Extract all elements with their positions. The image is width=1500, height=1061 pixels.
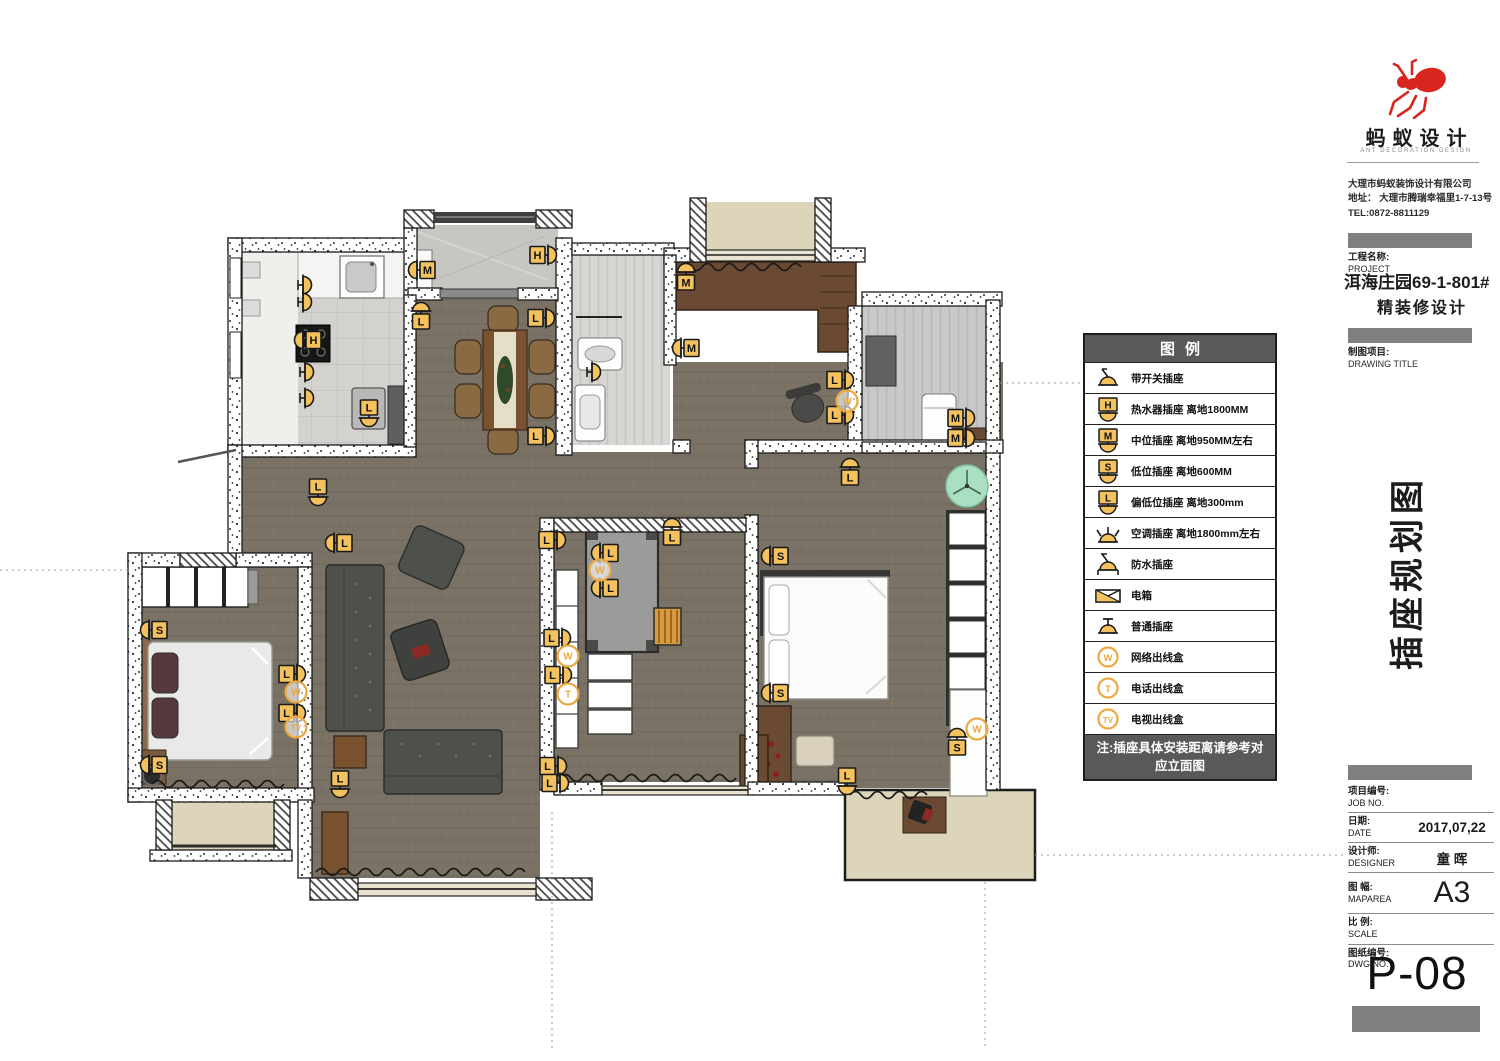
- socket-marker: S: [141, 620, 168, 641]
- socket-marker: L: [840, 459, 861, 486]
- legend-row: W网络出线盒: [1085, 641, 1275, 672]
- svg-text:L: L: [283, 669, 290, 681]
- brand-subtitle: ANT DECORATION DESIGN: [1346, 148, 1486, 154]
- outlet-marker-W: W: [286, 682, 307, 703]
- section-bar: [1348, 328, 1472, 343]
- socket-marker: L: [359, 400, 380, 427]
- socket-marker: L: [662, 519, 683, 546]
- outlet-marker-TV: TV: [286, 717, 307, 738]
- svg-text:L: L: [543, 535, 550, 547]
- waterproof-socket-icon: [1085, 551, 1131, 578]
- ac-socket-icon: [1085, 520, 1131, 547]
- svg-text:T: T: [565, 690, 571, 701]
- svg-text:L: L: [548, 633, 555, 645]
- socket-marker: M: [948, 408, 975, 429]
- outlet-marker-W: W: [558, 646, 579, 667]
- ceiling-fan-icon: [946, 465, 988, 507]
- svg-text:L: L: [831, 410, 838, 422]
- circle-outlet-icon: W: [1085, 644, 1131, 671]
- socket-marker: S: [141, 755, 168, 776]
- titleblock-value: 童 晖: [1410, 848, 1494, 868]
- svg-text:TV: TV: [1103, 716, 1114, 725]
- socket-marker: L: [542, 773, 569, 794]
- legend-label: 网络出线盒: [1131, 650, 1184, 665]
- svg-text:L: L: [532, 431, 539, 443]
- legend-label: 电话出线盒: [1131, 681, 1184, 696]
- sheet-title-vertical: 插座规划图: [1346, 452, 1462, 692]
- svg-text:H: H: [534, 250, 542, 262]
- letter-socket-icon: S: [1085, 458, 1131, 485]
- socket-marker: S: [762, 546, 789, 567]
- svg-text:L: L: [341, 538, 348, 550]
- legend-row: T电话出线盒: [1085, 672, 1275, 703]
- svg-text:W: W: [563, 652, 573, 663]
- svg-text:S: S: [156, 625, 163, 637]
- ladder: [654, 608, 681, 645]
- letter-socket-icon: H: [1085, 396, 1131, 423]
- laundry-cabinet: [866, 336, 896, 386]
- svg-text:L: L: [418, 317, 425, 329]
- titleblock-value: 2017,07,22: [1410, 820, 1494, 835]
- svg-text:M: M: [951, 433, 960, 445]
- socket-marker: L: [539, 530, 566, 551]
- svg-text:L: L: [607, 583, 614, 595]
- svg-text:S: S: [777, 688, 784, 700]
- company-tel: TEL:0872-8811129: [1348, 207, 1500, 221]
- legend-row: H热水器插座 离地1800MM: [1085, 393, 1275, 424]
- socket-marker: L: [411, 303, 432, 330]
- titleblock-row: 日期:DATE2017,07,22: [1348, 813, 1494, 843]
- svg-text:L: L: [669, 533, 676, 545]
- legend-label: 带开关插座: [1131, 371, 1184, 386]
- brand-divider: [1347, 162, 1479, 163]
- project-name: 洱海庄园69-1-801#: [1344, 268, 1500, 293]
- legend-label: 防水插座: [1131, 557, 1173, 572]
- svg-text:L: L: [544, 761, 551, 773]
- svg-text:M: M: [1104, 431, 1112, 442]
- legend-row: M中位插座 离地950MM左右: [1085, 424, 1275, 455]
- socket-marker: L: [528, 308, 555, 329]
- socket-marker: M: [673, 338, 700, 359]
- svg-text:S: S: [777, 551, 784, 563]
- drawing-sheet: HLMHLLLLMMLLMMLSSLSLLLLLLLLLSSLLLWWWWTWT…: [0, 0, 1500, 1061]
- socket-marker: L: [540, 756, 567, 777]
- titleblock-row: 项目编号:JOB NO.: [1348, 783, 1494, 813]
- legend-label: 普通插座: [1131, 619, 1173, 634]
- svg-text:L: L: [366, 403, 373, 415]
- svg-text:W: W: [291, 688, 301, 699]
- circle-outlet-icon: T: [1085, 675, 1131, 702]
- svg-text:TV: TV: [291, 724, 302, 733]
- normal-socket-icon: [1085, 613, 1131, 640]
- switch-socket-icon: [1085, 365, 1131, 392]
- svg-text:W: W: [842, 397, 852, 408]
- circle-outlet-icon: TV: [1085, 706, 1131, 733]
- kitchen-sink: [340, 256, 384, 298]
- legend-panel: 图例 带开关插座H热水器插座 离地1800MMM中位插座 离地950MM左右S低…: [1083, 333, 1277, 781]
- company-address: 地址： 大理市腾瑞幸福里1-7-13号: [1348, 192, 1500, 206]
- svg-text:H: H: [1104, 400, 1111, 411]
- titleblock-row: 图 幅:MAPAREAA3: [1348, 873, 1494, 914]
- legend-note: 注:插座具体安装距离请参考对应立面图: [1085, 734, 1275, 779]
- svg-text:L: L: [549, 670, 556, 682]
- section-bar: [1352, 1006, 1480, 1032]
- legend-row: 带开关插座: [1085, 362, 1275, 393]
- svg-text:L: L: [1105, 493, 1111, 504]
- svg-text:L: L: [532, 313, 539, 325]
- titleblock-row: 比 例:SCALE: [1348, 914, 1494, 944]
- legend-label: 偏低位插座 离地300mm: [1131, 495, 1244, 510]
- svg-text:W: W: [595, 566, 605, 577]
- sheet-number: P-08: [1352, 946, 1482, 1000]
- svg-text:S: S: [1105, 462, 1112, 473]
- legend-row: TV电视出线盒: [1085, 703, 1275, 734]
- legend-label: 电视出线盒: [1131, 712, 1184, 727]
- legend-row: 普通插座: [1085, 610, 1275, 641]
- outlet-marker-W: W: [837, 391, 858, 412]
- socket-marker: S: [947, 729, 968, 756]
- section-bar: [1348, 765, 1472, 780]
- bed-bench: [796, 736, 834, 766]
- shoe-cabinet: [322, 812, 348, 874]
- master-bed: [760, 570, 890, 699]
- svg-text:S: S: [156, 760, 163, 772]
- svg-text:L: L: [546, 778, 553, 790]
- project-name-line2: 精装修设计: [1344, 294, 1500, 318]
- svg-text:L: L: [831, 375, 838, 387]
- legend-label: 中位插座 离地950MM左右: [1131, 433, 1253, 448]
- legend-row: 空调插座 离地1800mm左右: [1085, 517, 1275, 548]
- svg-text:M: M: [423, 265, 432, 277]
- power-box-icon: [1085, 582, 1131, 609]
- svg-text:S: S: [953, 743, 960, 755]
- outlet-marker-W: W: [590, 560, 611, 581]
- socket-marker: M: [409, 260, 436, 281]
- bedroom2-wardrobe: [142, 567, 258, 607]
- socket-marker: S: [762, 683, 789, 704]
- svg-text:L: L: [315, 482, 322, 494]
- socket-marker: L: [827, 370, 854, 391]
- socket-marker: L: [545, 665, 572, 686]
- tall-cabinet: [388, 386, 404, 444]
- titleblock-value: A3: [1410, 876, 1494, 910]
- company-info: 大理市蚂蚁装饰设计有限公司 地址： 大理市腾瑞幸福里1-7-13号 TEL:08…: [1348, 178, 1500, 221]
- svg-text:L: L: [847, 473, 854, 485]
- socket-marker: M: [676, 264, 697, 291]
- side-table: [334, 736, 366, 768]
- svg-text:L: L: [337, 774, 344, 786]
- svg-text:M: M: [687, 343, 696, 355]
- svg-text:M: M: [681, 278, 690, 290]
- legend-title: 图例: [1085, 335, 1275, 362]
- legend-row: 电箱: [1085, 579, 1275, 610]
- socket-marker: L: [330, 771, 351, 798]
- socket-marker: M: [948, 428, 975, 449]
- socket-marker: H: [295, 330, 322, 351]
- outlet-marker-T: T: [558, 684, 579, 705]
- legend-label: 电箱: [1131, 588, 1152, 603]
- ant-logo-icon: [1368, 58, 1458, 120]
- outlet-marker-W: W: [967, 719, 988, 740]
- svg-text:T: T: [1105, 684, 1111, 695]
- section-bar: [1348, 233, 1472, 248]
- legend-label: 空调插座 离地1800mm左右: [1131, 526, 1260, 541]
- socket-marker: L: [308, 479, 329, 506]
- svg-text:H: H: [310, 335, 318, 347]
- letter-socket-icon: L: [1085, 489, 1131, 516]
- svg-text:M: M: [951, 413, 960, 425]
- titleblock-row: 设计师:DESIGNER童 晖: [1348, 843, 1494, 873]
- svg-text:W: W: [972, 725, 982, 736]
- legend-label: 低位插座 离地600MM: [1131, 464, 1232, 479]
- socket-marker: L: [837, 768, 858, 795]
- legend-label: 热水器插座 离地1800MM: [1131, 402, 1248, 417]
- svg-text:W: W: [1104, 653, 1113, 664]
- drawing-title-label: 制图项目: DRAWING TITLE: [1348, 347, 1418, 370]
- brand-name: 蚂蚁设计: [1346, 122, 1486, 151]
- socket-marker: H: [530, 245, 557, 266]
- legend-row: 防水插座: [1085, 548, 1275, 579]
- company-name: 大理市蚂蚁装饰设计有限公司: [1348, 178, 1500, 192]
- socket-marker: L: [326, 533, 353, 554]
- svg-text:L: L: [607, 548, 614, 560]
- svg-text:L: L: [844, 771, 851, 783]
- legend-row: L偏低位插座 离地300mm: [1085, 486, 1275, 517]
- letter-socket-icon: M: [1085, 427, 1131, 454]
- bedroom2-bed: [142, 640, 272, 762]
- socket-marker: L: [528, 426, 555, 447]
- legend-row: S低位插座 离地600MM: [1085, 455, 1275, 486]
